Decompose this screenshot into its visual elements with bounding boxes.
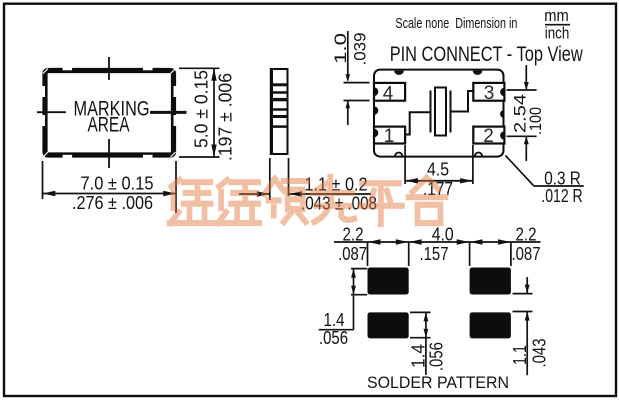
svg-text:.056: .056 (319, 328, 348, 348)
svg-text:4.5: 4.5 (427, 160, 449, 180)
svg-text:.276 ± .006: .276 ± .006 (72, 193, 153, 213)
svg-text:2.2: 2.2 (516, 224, 537, 244)
svg-text:Scale none Dimension in: Scale none Dimension in (395, 16, 517, 32)
svg-text:1: 1 (384, 126, 395, 147)
svg-text:.197 ± .006: .197 ± .006 (216, 73, 236, 161)
svg-text:2.2: 2.2 (343, 224, 364, 244)
svg-text:.056: .056 (427, 342, 447, 371)
svg-text:AREA: AREA (88, 114, 130, 137)
svg-text:1.4: 1.4 (409, 344, 429, 368)
svg-text:SOLDER PATTERN: SOLDER PATTERN (367, 374, 509, 392)
svg-text:2: 2 (483, 126, 494, 147)
svg-text:1.0: 1.0 (331, 33, 350, 64)
svg-text:.087: .087 (512, 244, 541, 264)
svg-text:mm: mm (544, 6, 569, 25)
svg-text:.012 R: .012 R (541, 186, 582, 206)
svg-text:.157: .157 (420, 244, 449, 264)
svg-text:inch: inch (545, 23, 570, 42)
svg-text:4: 4 (383, 83, 394, 104)
svg-text:.039: .039 (351, 33, 370, 66)
svg-text:.087: .087 (338, 244, 367, 264)
svg-text:.043: .043 (530, 339, 550, 368)
svg-text:5.0 ± 0.15: 5.0 ± 0.15 (192, 70, 212, 148)
svg-text:4.0: 4.0 (432, 224, 454, 244)
svg-text:7.0 ± 0.15: 7.0 ± 0.15 (81, 174, 154, 194)
svg-text:1.1: 1.1 (510, 345, 530, 365)
svg-text:.100: .100 (526, 107, 545, 135)
svg-text:3: 3 (484, 83, 495, 104)
svg-text:PIN CONNECT - Top View: PIN CONNECT - Top View (390, 43, 584, 66)
